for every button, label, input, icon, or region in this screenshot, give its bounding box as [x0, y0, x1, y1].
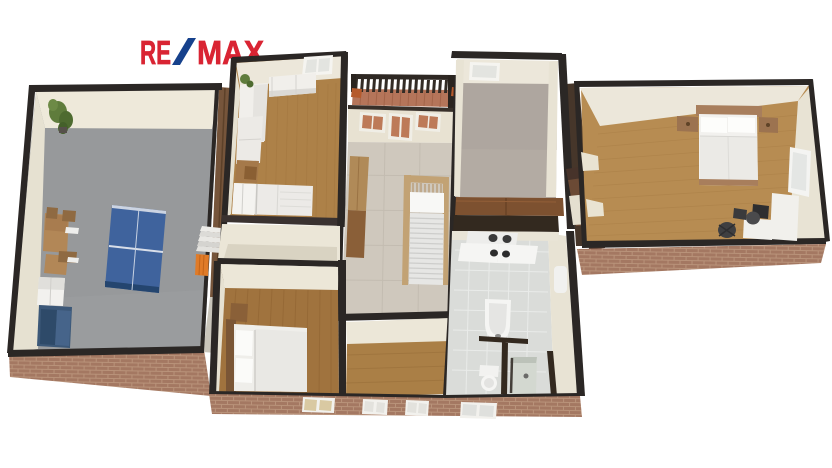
- svg-text:RE: RE: [140, 34, 171, 71]
